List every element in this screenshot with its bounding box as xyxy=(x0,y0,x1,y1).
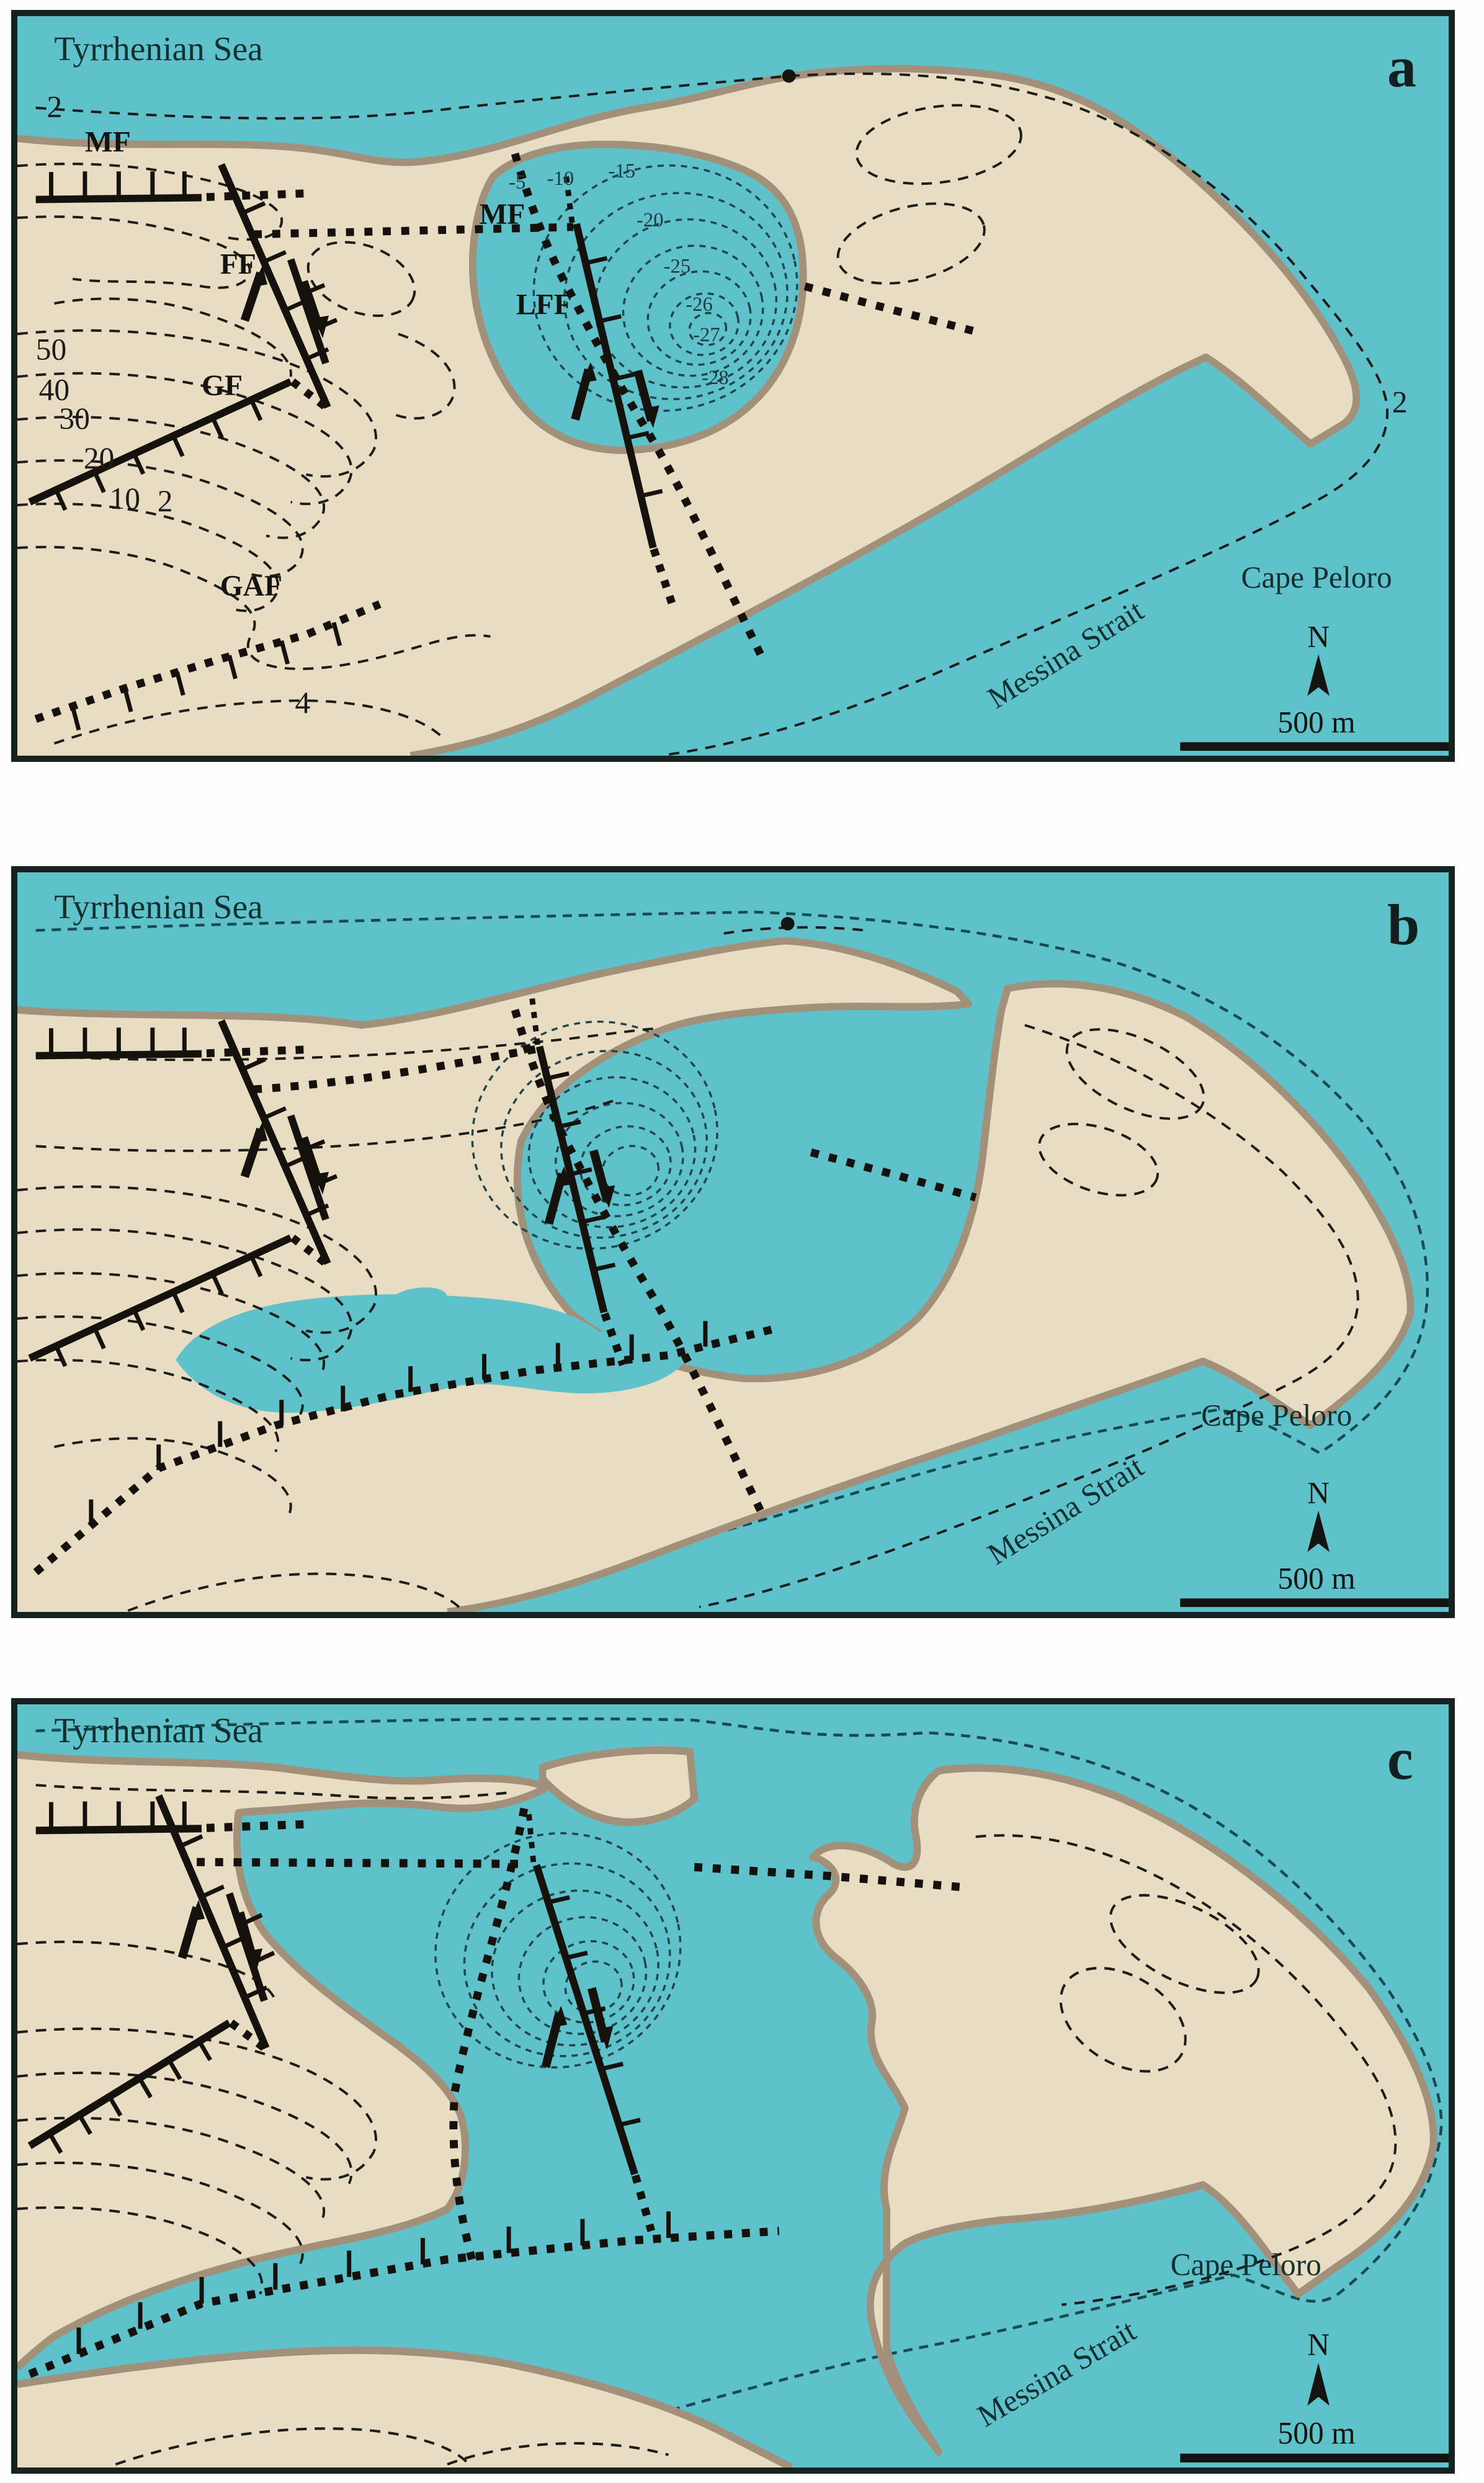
strait-label: Messina Strait xyxy=(981,1449,1150,1572)
map-c-canvas: Tyrrhenian Sea c Cape Peloro Messina Str… xyxy=(17,1704,1449,2467)
north-arrow-icon xyxy=(1307,1510,1330,1552)
sea-name-label: Tyrrhenian Sea xyxy=(54,1711,262,1750)
map-panel-b: Tyrrhenian Sea b Cape Peloro Messina Str… xyxy=(11,866,1455,1618)
point-marker xyxy=(782,69,796,83)
contour-label-20: 20 xyxy=(84,441,114,475)
fault-label-mf-west: MF xyxy=(85,127,131,159)
fault-label-gf: GF xyxy=(202,370,243,402)
sea-name-label: Tyrrhenian Sea xyxy=(54,888,262,926)
fault-label-ff: FF xyxy=(220,249,256,281)
scale-bar xyxy=(1180,742,1449,751)
north-label: N xyxy=(1307,1476,1330,1510)
cape-label: Cape Peloro xyxy=(1241,560,1392,594)
contour-label-30: 30 xyxy=(59,401,89,436)
figure-three-panel-map: Tyrrhenian Sea a 2 MF MF FF LFF GF GAF 5… xyxy=(0,0,1484,2483)
map-a-canvas: Tyrrhenian Sea a 2 MF MF FF LFF GF GAF 5… xyxy=(17,16,1449,756)
cape-label: Cape Peloro xyxy=(1201,1398,1352,1433)
strait-label: Messina Strait xyxy=(972,2312,1142,2433)
bathy-label: -27 xyxy=(693,324,720,346)
bathy-label: -26 xyxy=(686,293,713,316)
scale-label: 500 m xyxy=(1278,705,1356,740)
strait-label: Messina Strait xyxy=(981,593,1150,715)
map-panel-a: Tyrrhenian Sea a 2 MF MF FF LFF GF GAF 5… xyxy=(11,10,1455,762)
contour-label-2-right: 2 xyxy=(1392,385,1408,419)
bathymetric-contours xyxy=(414,1810,702,2090)
north-label: N xyxy=(1307,620,1330,654)
contour-label-2-top: 2 xyxy=(47,90,63,124)
bathy-label: -25 xyxy=(664,256,691,278)
scale-label: 500 m xyxy=(1278,1562,1356,1596)
bathy-label: -28 xyxy=(702,367,729,389)
north-arrow-icon xyxy=(1307,654,1330,696)
cape-label: Cape Peloro xyxy=(1171,2247,1321,2282)
panel-letter: b xyxy=(1387,893,1419,957)
contour-label-4: 4 xyxy=(295,686,311,720)
scale-label: 500 m xyxy=(1278,2415,1356,2451)
fault-label-lff: LFF xyxy=(516,289,572,321)
scale-bar xyxy=(1180,2454,1449,2463)
fault-label-gaf: GAF xyxy=(220,570,282,602)
north-arrow-icon xyxy=(1307,2363,1330,2405)
contour-label-2-low: 2 xyxy=(158,484,173,518)
landmass xyxy=(17,1750,1434,2467)
scale-bar xyxy=(1180,1598,1449,1607)
map-panel-c: Tyrrhenian Sea c Cape Peloro Messina Str… xyxy=(11,1698,1455,2474)
fault-label-mf-east: MF xyxy=(480,199,525,231)
map-b-canvas: Tyrrhenian Sea b Cape Peloro Messina Str… xyxy=(17,872,1449,1612)
bathy-label: -5 xyxy=(509,171,525,194)
point-marker xyxy=(781,917,795,931)
panel-letter: c xyxy=(1387,1725,1413,1792)
contour-label-50: 50 xyxy=(36,333,66,367)
sea-name-label: Tyrrhenian Sea xyxy=(54,30,262,68)
bathy-label: -20 xyxy=(637,209,664,231)
bathy-label: -15 xyxy=(609,160,636,182)
north-label: N xyxy=(1307,2327,1330,2362)
bathy-label: -10 xyxy=(547,168,574,190)
contour-label-10: 10 xyxy=(110,481,140,516)
panel-letter: a xyxy=(1387,35,1416,99)
